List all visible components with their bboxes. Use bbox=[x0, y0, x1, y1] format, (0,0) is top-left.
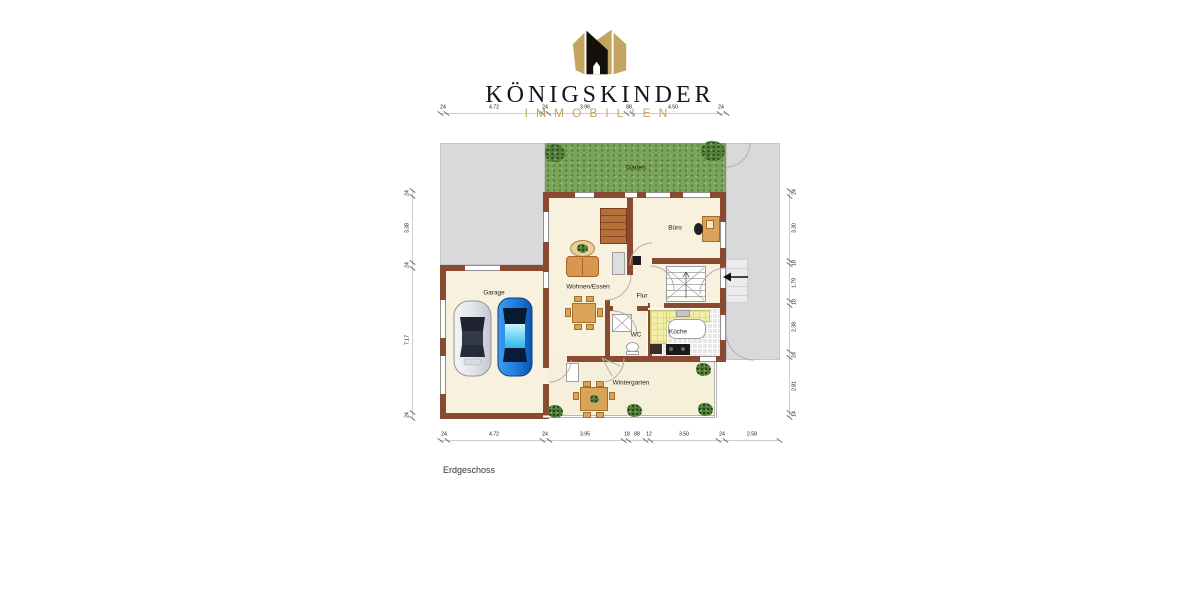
wintergarten-chair bbox=[596, 381, 604, 387]
room-label-wohnen-essen: Wohnen/Essen bbox=[566, 283, 609, 290]
dimension-label: 18 bbox=[791, 260, 797, 266]
wall bbox=[440, 265, 446, 419]
dining-chair bbox=[565, 308, 571, 317]
glass-wall bbox=[714, 362, 717, 418]
paving-area-right bbox=[726, 143, 780, 360]
room-label-garage: Garage bbox=[483, 289, 504, 296]
window bbox=[465, 265, 500, 271]
door-opening bbox=[543, 368, 549, 384]
kitchen-counter-left bbox=[650, 310, 667, 344]
room-label-kueche: Küche bbox=[669, 328, 687, 335]
dimension-line-right bbox=[789, 190, 790, 417]
room-label-wintergarten: Wintergarten bbox=[613, 379, 650, 386]
kitchen-appliance bbox=[650, 344, 662, 354]
dimension-label: 88 bbox=[634, 431, 640, 437]
dimension-line-left bbox=[412, 190, 413, 418]
door-opening bbox=[650, 303, 664, 308]
wintergarten-chair bbox=[583, 381, 591, 387]
entrance-porch bbox=[726, 259, 748, 303]
wintergarten-chair bbox=[583, 412, 591, 418]
potted-plant bbox=[627, 404, 642, 417]
room-label-wc: WC bbox=[631, 331, 642, 338]
room-label-buero: Büro bbox=[668, 224, 682, 231]
car-blue bbox=[496, 296, 534, 378]
window bbox=[720, 315, 726, 340]
window bbox=[646, 192, 670, 198]
dimension-label: 24 bbox=[404, 190, 410, 196]
room-label-garten: Garten bbox=[626, 164, 646, 171]
brand-title: KÖNIGSKINDER bbox=[0, 82, 1200, 109]
window bbox=[575, 192, 594, 198]
window bbox=[720, 222, 726, 248]
dimension-label: 24 bbox=[791, 189, 797, 195]
window bbox=[440, 356, 446, 394]
window bbox=[683, 192, 710, 198]
window bbox=[543, 272, 549, 288]
window bbox=[543, 212, 549, 242]
door-opening bbox=[549, 356, 567, 362]
wall bbox=[440, 413, 549, 419]
window bbox=[625, 192, 637, 198]
garden-bush bbox=[545, 144, 565, 162]
shower bbox=[612, 314, 632, 332]
dimension-label: 2.58 bbox=[747, 431, 757, 437]
table-plant bbox=[577, 244, 588, 253]
sofa-cushion-line bbox=[582, 258, 583, 275]
potted-plant bbox=[696, 363, 711, 376]
potted-plant bbox=[548, 405, 563, 418]
dimension-label: 24 bbox=[542, 431, 548, 437]
dining-chair bbox=[586, 324, 594, 330]
dimension-label: 3.95 bbox=[580, 431, 590, 437]
dimension-label: 24 bbox=[719, 431, 725, 437]
dimension-label: 3.30 bbox=[791, 223, 797, 233]
wintergarten-chair bbox=[573, 392, 579, 400]
desk-item bbox=[706, 220, 714, 229]
wall bbox=[543, 356, 726, 362]
brand-subtitle: IMMOBILIEN bbox=[0, 106, 1200, 120]
door-opening bbox=[613, 306, 637, 311]
wintergarten-chair bbox=[596, 412, 604, 418]
interior-staircase bbox=[600, 208, 627, 244]
wintergarten-chair bbox=[609, 392, 615, 400]
dining-table bbox=[572, 303, 596, 323]
crown-logo-icon bbox=[568, 25, 632, 77]
dimension-label: 1.79 bbox=[791, 278, 797, 288]
entrance-door-opening bbox=[720, 268, 726, 288]
dimension-label: 2.81 bbox=[791, 381, 797, 391]
dimension-label: 3.38 bbox=[404, 223, 410, 233]
fireplace bbox=[633, 256, 641, 265]
dimension-label: 24 bbox=[441, 431, 447, 437]
garden-bush bbox=[701, 141, 725, 161]
toilet-tank bbox=[626, 351, 639, 355]
floor-label: Erdgeschoss bbox=[443, 465, 495, 475]
potted-plant bbox=[698, 403, 713, 416]
sideboard bbox=[566, 363, 579, 382]
dimension-label: 18 bbox=[791, 299, 797, 305]
dining-chair bbox=[574, 296, 582, 302]
floorplan-page: KÖNIGSKINDER IMMOBILIEN bbox=[0, 0, 1200, 600]
dimension-label: 4.72 bbox=[489, 431, 499, 437]
office-chair bbox=[694, 223, 703, 235]
dimension-line-bottom bbox=[440, 440, 779, 441]
dimension-label: 3.50 bbox=[679, 431, 689, 437]
paving-area-left bbox=[440, 143, 545, 265]
dimension-label: 24 bbox=[791, 352, 797, 358]
hall-staircase bbox=[666, 266, 706, 302]
dimension-label: 14 bbox=[791, 411, 797, 417]
dimension-label: 12 bbox=[646, 431, 652, 437]
dimension-label: 18 bbox=[624, 431, 630, 437]
dimension-label: 2.38 bbox=[791, 322, 797, 332]
stove-burner bbox=[669, 347, 673, 351]
dining-chair bbox=[597, 308, 603, 317]
stove-burner bbox=[681, 347, 685, 351]
kitchen-sink bbox=[676, 310, 690, 317]
room-label-flur: Flur bbox=[636, 292, 647, 299]
wall bbox=[652, 258, 726, 264]
dimension-label: 24 bbox=[404, 262, 410, 268]
dimension-label: 7.17 bbox=[404, 335, 410, 345]
car-silver bbox=[452, 299, 493, 378]
dimension-label: 24 bbox=[404, 412, 410, 418]
wintergarten-table-plant bbox=[590, 395, 599, 403]
dining-chair bbox=[574, 324, 582, 330]
dining-chair bbox=[586, 296, 594, 302]
window bbox=[440, 300, 446, 338]
tv-cabinet bbox=[612, 252, 625, 275]
